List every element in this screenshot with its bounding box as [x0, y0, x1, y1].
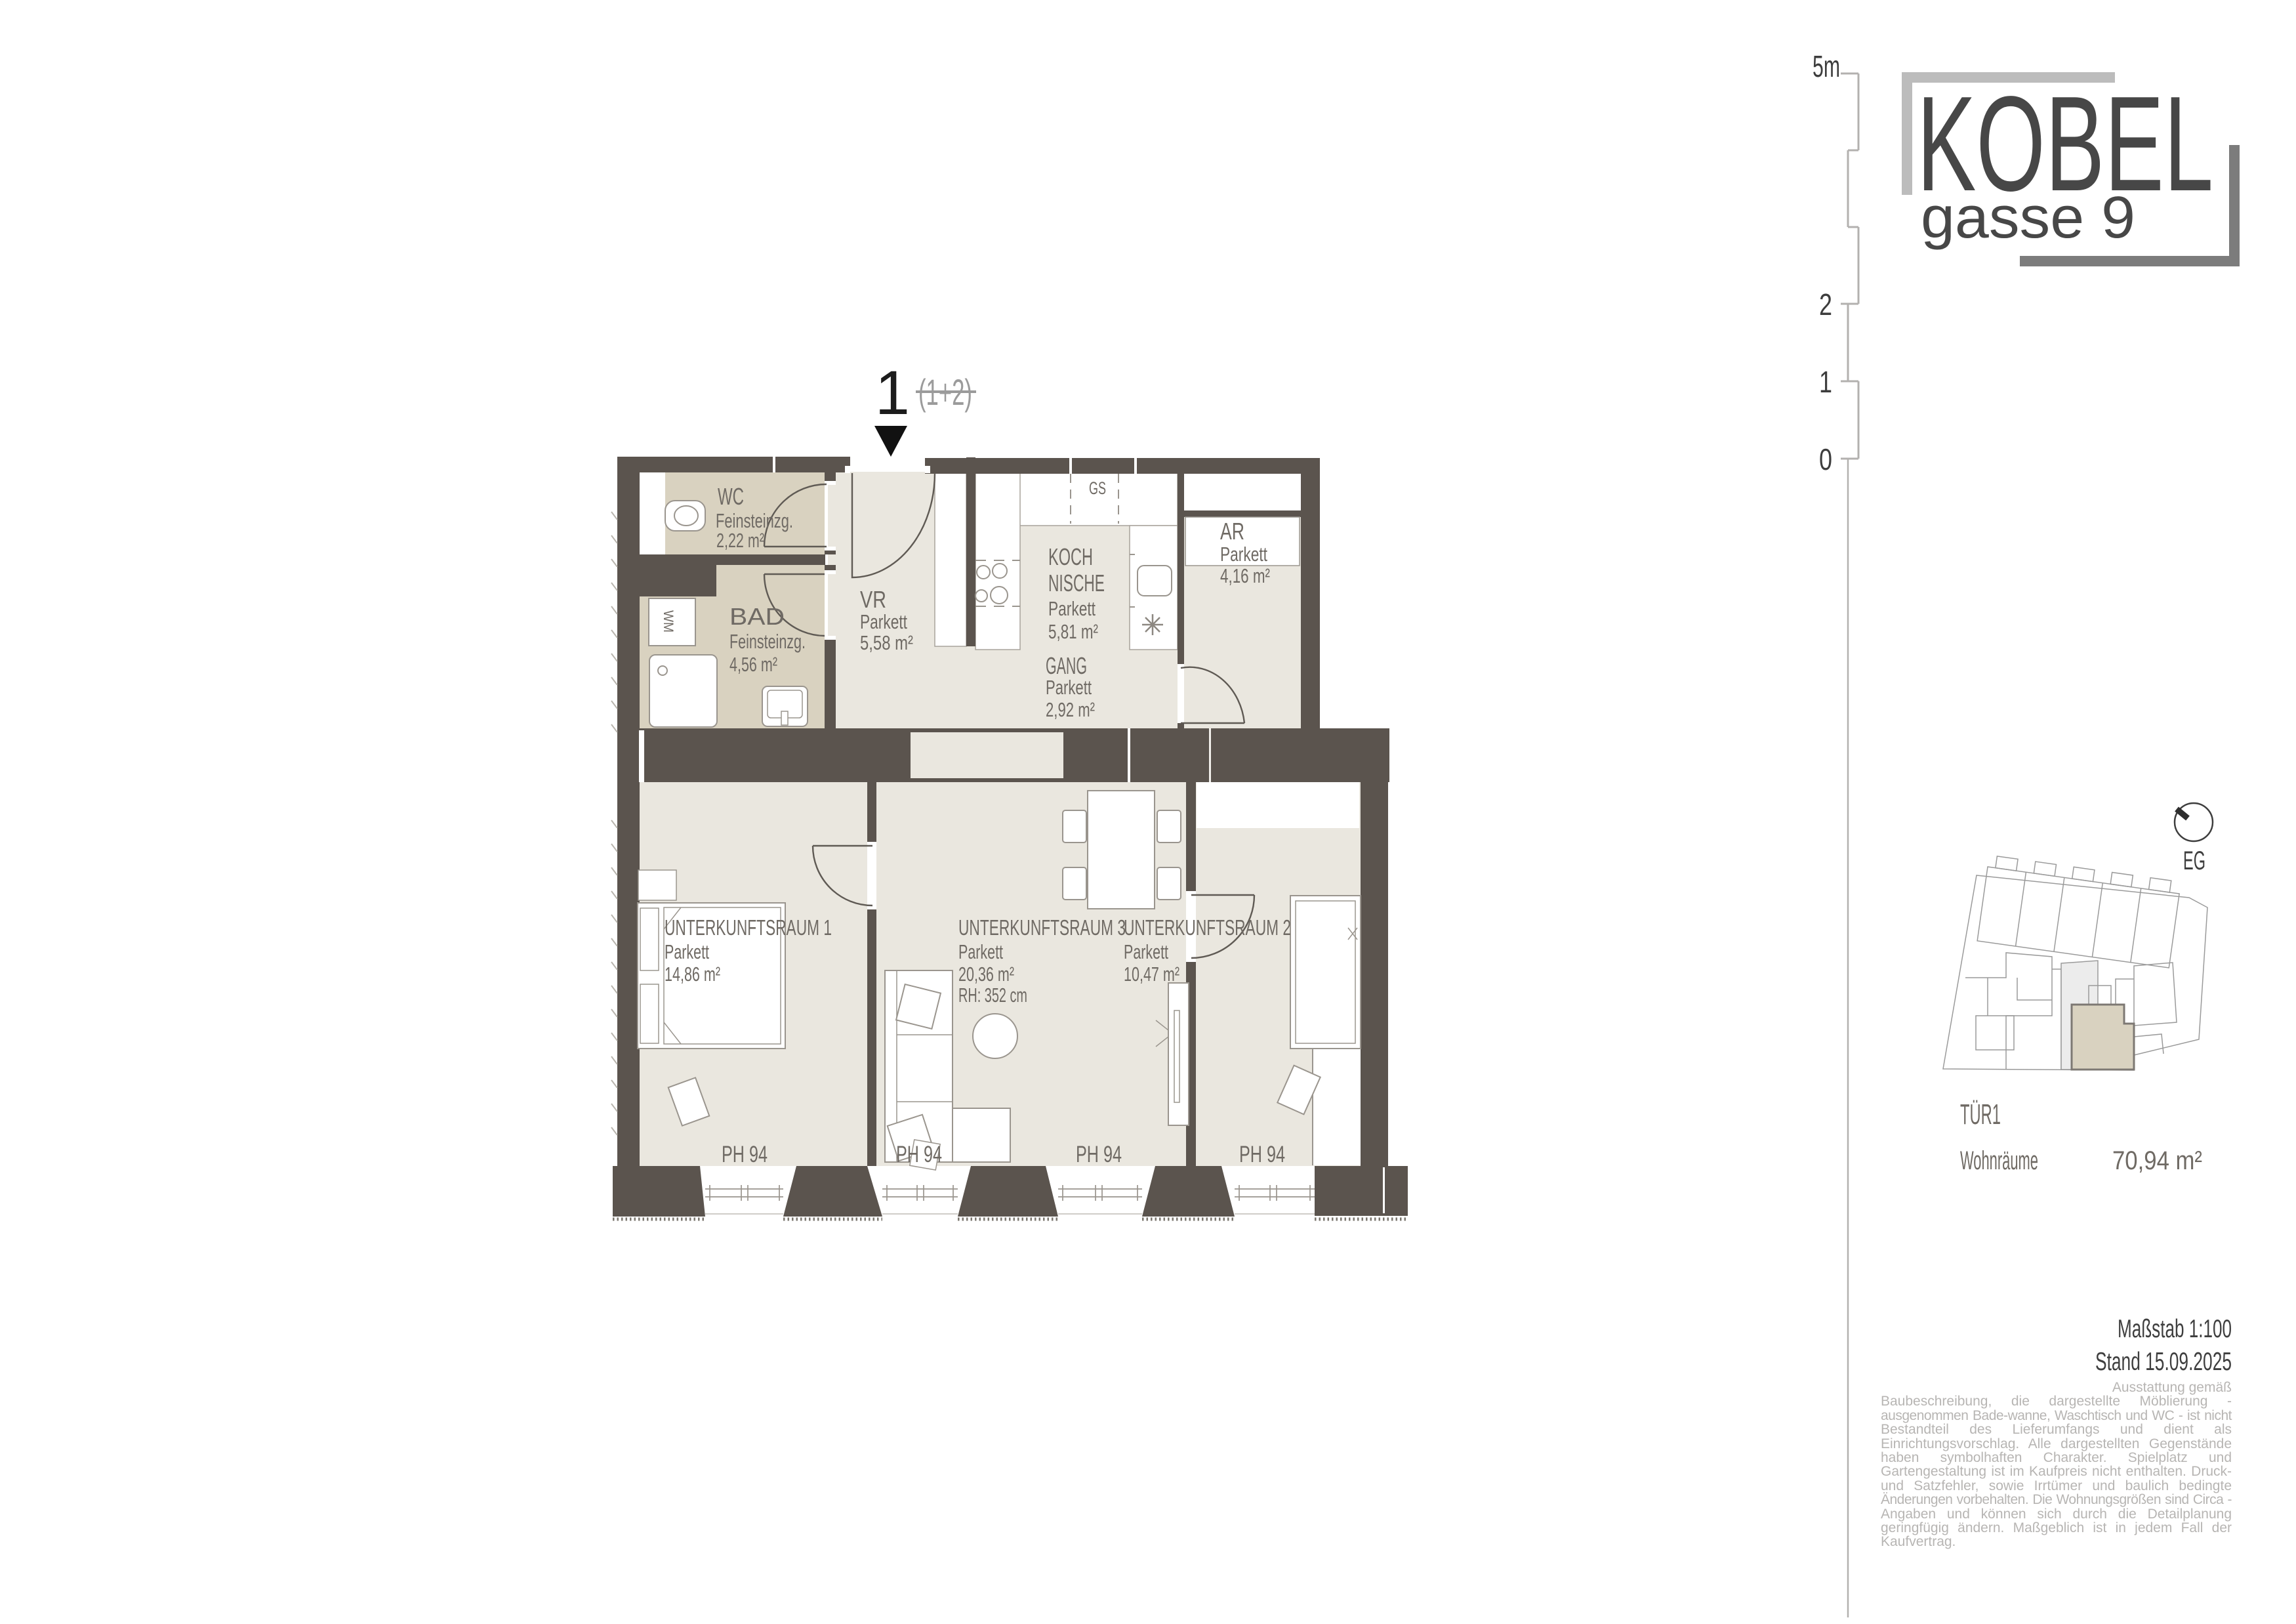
svg-text:4,56 m²: 4,56 m² [729, 653, 777, 676]
svg-text:gasse 9: gasse 9 [1921, 185, 2135, 251]
svg-text:AR: AR [1220, 518, 1244, 545]
svg-text:4,16 m²: 4,16 m² [1220, 564, 1270, 587]
svg-text:PH 94: PH 94 [1076, 1142, 1122, 1167]
svg-text:10,47 m²: 10,47 m² [1124, 963, 1179, 986]
svg-text:UNTERKUNFTSRAUM 3: UNTERKUNFTSRAUM 3 [958, 915, 1126, 940]
svg-text:Parkett: Parkett [1048, 597, 1096, 620]
svg-text:GANG: GANG [1046, 652, 1087, 679]
svg-text:PH 94: PH 94 [722, 1142, 768, 1167]
svg-text:WM: WM [661, 610, 676, 633]
svg-text:NISCHE: NISCHE [1048, 570, 1105, 596]
svg-text:1: 1 [1819, 365, 1832, 399]
svg-text:Parkett: Parkett [1046, 676, 1092, 699]
svg-text:1: 1 [875, 358, 910, 428]
svg-text:2,22 m²: 2,22 m² [716, 529, 764, 552]
svg-text:Parkett: Parkett [1124, 940, 1168, 963]
svg-text:EG: EG [2183, 846, 2205, 875]
svg-text:KOCH: KOCH [1048, 543, 1093, 570]
svg-text:5,58 m²: 5,58 m² [860, 631, 913, 654]
svg-text:WC: WC [718, 483, 744, 510]
svg-text:Parkett: Parkett [665, 940, 709, 963]
svg-text:Parkett: Parkett [1220, 543, 1267, 566]
svg-text:Stand 15.09.2025: Stand 15.09.2025 [2095, 1348, 2232, 1376]
svg-text:2,92 m²: 2,92 m² [1046, 698, 1095, 721]
svg-text:PH 94: PH 94 [1239, 1142, 1285, 1167]
svg-text:Maßstab 1:100: Maßstab 1:100 [2118, 1315, 2232, 1343]
svg-text:5,81 m²: 5,81 m² [1048, 620, 1098, 643]
svg-text:UNTERKUNFTSRAUM 2: UNTERKUNFTSRAUM 2 [1124, 915, 1291, 940]
svg-text:Parkett: Parkett [860, 610, 907, 633]
svg-text:5m: 5m [1813, 49, 1840, 83]
svg-text:70,94 m²: 70,94 m² [2112, 1146, 2202, 1175]
svg-text:20,36 m²: 20,36 m² [958, 963, 1014, 986]
svg-text:Wohnräume: Wohnräume [1960, 1146, 2038, 1175]
svg-text:14,86 m²: 14,86 m² [665, 963, 720, 986]
svg-text:VR: VR [860, 586, 886, 613]
svg-text:Parkett: Parkett [958, 940, 1003, 963]
svg-text:RH: 352 cm: RH: 352 cm [958, 984, 1027, 1007]
svg-text:UNTERKUNFTSRAUM 1: UNTERKUNFTSRAUM 1 [665, 915, 832, 940]
svg-text:Feinsteinzg.: Feinsteinzg. [729, 630, 806, 653]
svg-text:0: 0 [1819, 442, 1832, 476]
svg-text:TÜR1: TÜR1 [1960, 1098, 2001, 1131]
svg-text:2: 2 [1819, 287, 1832, 322]
svg-text:GS: GS [1089, 478, 1106, 498]
svg-text:BAD: BAD [729, 603, 785, 630]
svg-text:PH 94: PH 94 [896, 1142, 942, 1167]
